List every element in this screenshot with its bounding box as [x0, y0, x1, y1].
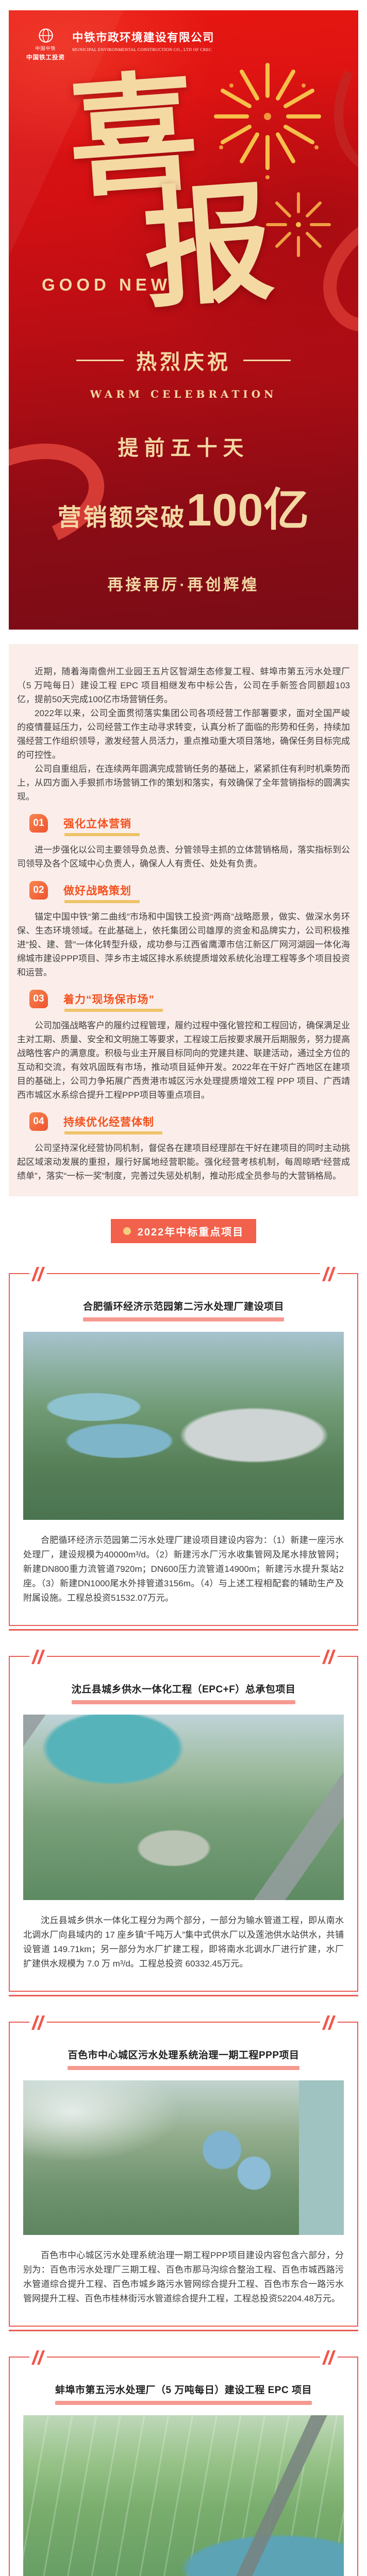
projects-section-header: 2022年中标重点项目 [0, 1219, 367, 1243]
celebration-banner: 中国中铁 中国铁工投资 中铁市政环境建设有限公司 MUNICIPAL ENVIR… [9, 10, 358, 630]
section-number-badge: 02 [29, 881, 48, 900]
celebrate-en-label: WARM CELEBRATION [9, 388, 358, 400]
project-description: 合肥循环经济示范园第二污水处理厂建设项目建设内容为：（1）新建一座污水处理厂，建… [23, 1533, 344, 1605]
double-slash-quote-icon [29, 2350, 47, 2365]
ahead-of-schedule-label: 提前五十天 [9, 431, 358, 461]
projects-header-label: 2022年中标重点项目 [138, 1224, 244, 1239]
sales-number-label: 100亿 [187, 484, 310, 535]
section-title: 持续优化经营体制 [63, 1114, 154, 1129]
section-body: 进一步强化以公司主要领导负总责、分管领导主抓的立体营销格局，落实指标到公司领导及… [17, 843, 350, 871]
project-rendering-image[interactable] [23, 1715, 344, 1900]
double-slash-quote-icon [320, 1650, 338, 1664]
celebrate-cn-label: 热烈庆祝 [136, 345, 231, 375]
intro-paragraph: 2022年以来，公司全面贯彻落实集团公司各项经营工作部署要求，面对全国严峻的疫情… [17, 706, 350, 762]
project-title: 合肥循环经济示范园第二污水处理厂建设项目 [83, 1299, 284, 1321]
article-panel: 近期，随着海南儋州工业园王五片区智湖生态修复工程、蚌埠市第五污水处理厂（5 万吨… [9, 644, 358, 1196]
section-title: 强化立体营销 [63, 816, 131, 831]
sales-prefix-label: 营销额突破 [58, 504, 187, 531]
project-card-1: 合肥循环经济示范园第二污水处理厂建设项目 合肥循环经济示范园第二污水处理厂建设项… [9, 1273, 358, 1626]
project-title: 沈丘县城乡供水一体化工程（EPC+F）总承包项目 [72, 1682, 296, 1704]
double-slash-quote-icon [29, 1650, 47, 1664]
logo-investor-label: 中国铁工投资 [26, 53, 65, 61]
double-slash-quote-icon [29, 2015, 47, 2030]
project-rendering-image[interactable] [23, 2415, 344, 2576]
project-card-4: 蚌埠市第五污水处理厂（5 万吨每日）建设工程 EPC 项目 蚌埠市第五污水处理厂… [9, 2357, 358, 2576]
section-header-3: 03 着力“现场保市场” [17, 990, 350, 1008]
company-name-cn: 中铁市政环境建设有限公司 [72, 29, 214, 45]
good-news-label: GOOD NEWS [42, 275, 187, 295]
left-rule-decoration [76, 360, 124, 361]
celebration-text-block: 热烈庆祝 WARM CELEBRATION 提前五十天 营销额突破100亿 再接… [9, 345, 358, 595]
section-title: 做好战略策划 [63, 883, 131, 898]
project-description: 沈丘县城乡供水一体化工程分为两个部分，一部分为输水管道工程，即从南水北调水厂向县… [23, 1913, 344, 1971]
section-body: 公司加强战略客户的履约过程管理，履约过程中强化管控和工程回访，确保满足业主对工期… [17, 1019, 350, 1102]
project-rendering-image[interactable] [23, 2080, 344, 2235]
double-slash-quote-icon [29, 1267, 47, 1281]
section-body: 锚定中国中铁“第二曲线”市场和中国铁工投资“两商”战略愿景，做实、做深水务环保、… [17, 910, 350, 979]
section-title: 着力“现场保市场” [63, 991, 155, 1007]
section-number-badge: 01 [29, 814, 48, 833]
project-title: 蚌埠市第五污水处理厂（5 万吨每日）建设工程 EPC 项目 [55, 2382, 312, 2405]
header-logo-block: 中国中铁 中国铁工投资 中铁市政环境建设有限公司 MUNICIPAL ENVIR… [26, 28, 214, 61]
project-rendering-image[interactable] [23, 1332, 344, 1520]
circle-dot-icon [123, 1227, 131, 1235]
section-header-1: 01 强化立体营销 [17, 814, 350, 833]
project-title: 百色市中心城区污水处理系统治理一期工程PPP项目 [68, 2047, 299, 2070]
project-card-3: 百色市中心城区污水处理系统治理一期工程PPP项目 百色市中心城区污水处理系统治理… [9, 2022, 358, 2327]
section-number-badge: 04 [29, 1112, 48, 1131]
double-slash-quote-icon [320, 1267, 338, 1281]
slogan-label: 再接再厉·再创辉煌 [9, 572, 358, 595]
intro-paragraph: 公司自重组后，在连续两年圆满完成营销任务的基础上，紧紧抓住有利时机乘势而上，从四… [17, 762, 350, 804]
section-body: 公司坚持深化经营协同机制，督促各在建项目经理部在干好在建项目的同时主动挑起区域滚… [17, 1141, 350, 1183]
sales-milestone-line: 营销额突破100亿 [9, 473, 358, 539]
double-slash-quote-icon [320, 2350, 338, 2365]
section-header-4: 04 持续优化经营体制 [17, 1112, 350, 1131]
double-slash-quote-icon [320, 2015, 338, 2030]
section-header-2: 02 做好战略策划 [17, 881, 350, 900]
right-rule-decoration [243, 360, 291, 361]
logo-org-label: 中国中铁 [26, 45, 65, 52]
company-name-en: MUNICIPAL ENVIRONMENTAL CONSTRUCTION CO.… [72, 47, 214, 52]
section-number-badge: 03 [29, 990, 48, 1008]
crec-globe-icon [38, 28, 54, 43]
project-description: 百色市中心城区污水处理系统治理一期工程PPP项目建设内容包含六部分，分别为：百色… [23, 2248, 344, 2306]
projects-header-badge: 2022年中标重点项目 [111, 1219, 257, 1243]
intro-paragraph: 近期，随着海南儋州工业园王五片区智湖生态修复工程、蚌埠市第五污水处理厂（5 万吨… [17, 665, 350, 706]
project-card-2: 沈丘县城乡供水一体化工程（EPC+F）总承包项目 沈丘县城乡供水一体化工程分为两… [9, 1656, 358, 1992]
